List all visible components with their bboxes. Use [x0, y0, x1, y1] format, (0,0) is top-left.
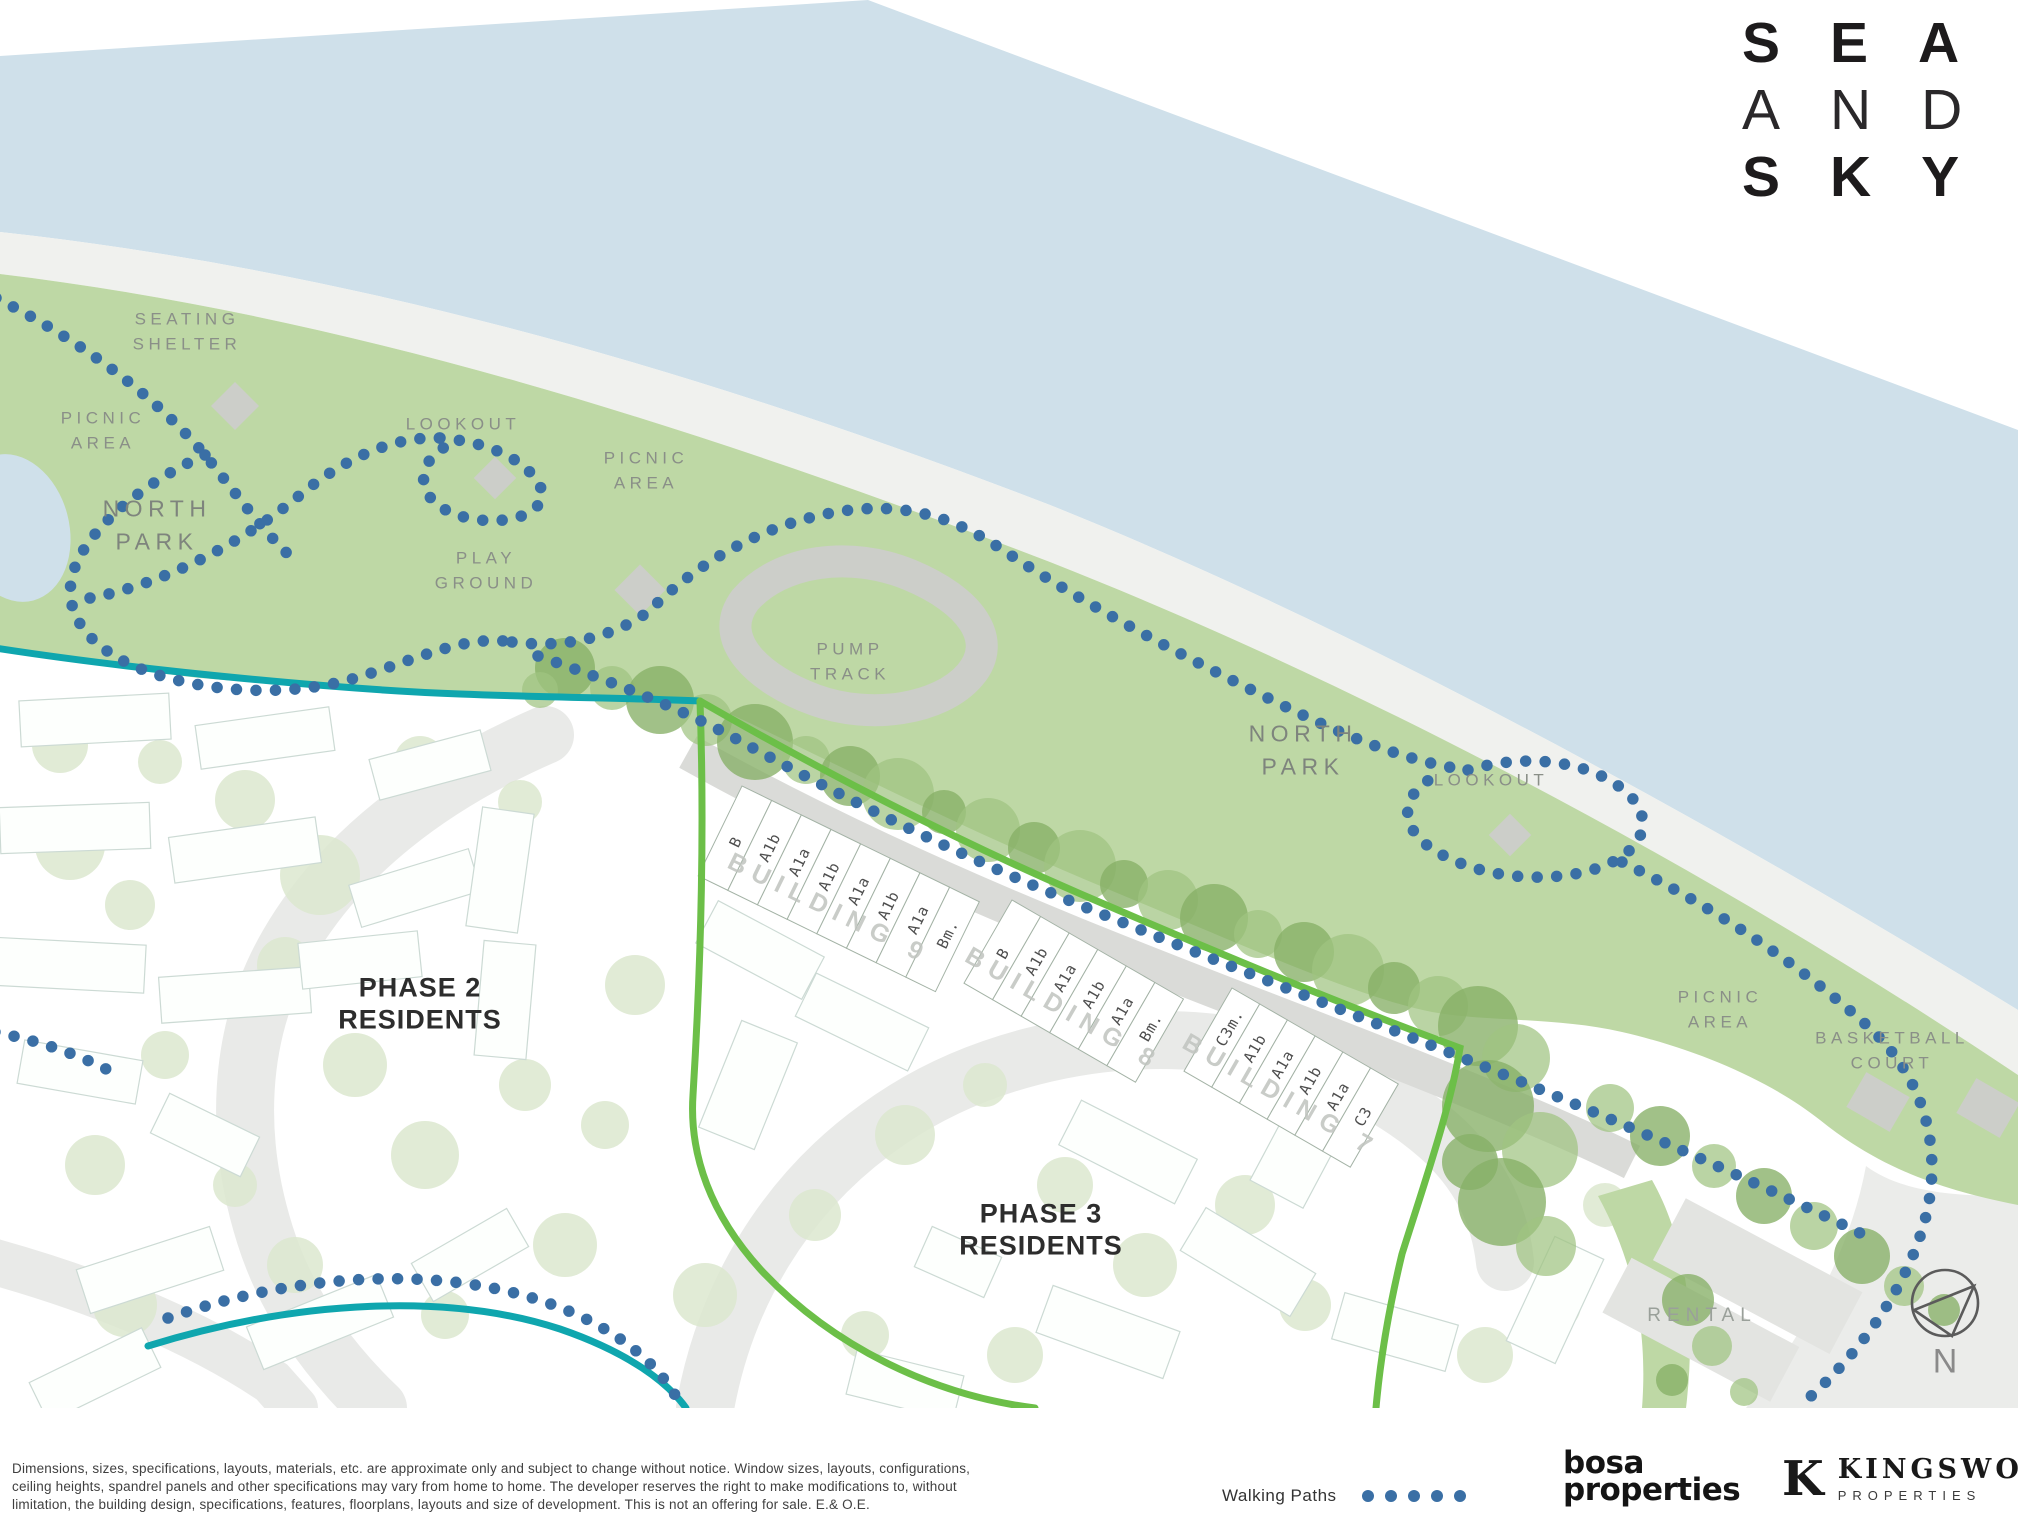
logo-line-sky: SKY: [1742, 144, 2012, 211]
label-picnic-area-mid: PICNIC AREA: [604, 446, 689, 495]
label-picnic-area-east: PICNIC AREA: [1678, 985, 1763, 1034]
label-north-park-east: NORTH PARK: [1249, 718, 1358, 785]
logo-line-sea: SEA: [1742, 10, 2012, 77]
label-pump-track: PUMP TRACK: [810, 637, 890, 686]
kingswood-properties-logo: K KINGSWOOD PROPERTIES: [1782, 1454, 2018, 1503]
kingswood-monogram-icon: K: [1782, 1455, 1824, 1503]
disclaimer-line-3: limitation, the building design, specifi…: [12, 1496, 1152, 1514]
label-picnic-area-west: PICNIC AREA: [61, 406, 146, 455]
label-north-letter: N: [1933, 1337, 1958, 1386]
footer: Dimensions, sizes, specifications, layou…: [0, 1408, 2018, 1519]
logo-line-and: AND: [1742, 77, 2012, 144]
site-plan-map: BA1bA1aA1bA1aA1bA1aBm.BUILDING 9BA1bA1aA…: [0, 0, 2018, 1408]
disclaimer-line-2: ceiling heights, spandrel panels and oth…: [12, 1478, 1152, 1496]
label-rental: RENTAL: [1647, 1302, 1757, 1330]
legend-label: Walking Paths: [1222, 1486, 1337, 1506]
label-play-ground: PLAY GROUND: [435, 546, 538, 595]
sea-and-sky-logo: SEA AND SKY: [1742, 10, 2012, 211]
label-phase2-residents: PHASE 2 RESIDENTS: [338, 972, 502, 1037]
walking-path-dots-icon: [1361, 1489, 1473, 1503]
bosa-properties-logo: bosa properties: [1563, 1450, 1740, 1504]
walking-paths-legend: Walking Paths: [1222, 1486, 1473, 1506]
bosa-line-2: properties: [1563, 1477, 1740, 1504]
disclaimer-text: Dimensions, sizes, specifications, layou…: [12, 1460, 1152, 1514]
label-basketball-court: BASKETBALL COURT: [1815, 1026, 1969, 1075]
kingswood-name: KINGSWOOD: [1838, 1454, 2018, 1485]
label-seating-shelter: SEATING SHELTER: [133, 307, 242, 356]
kingswood-subtitle: PROPERTIES: [1838, 1488, 2018, 1503]
label-lookout-east: LOOKOUT: [1434, 769, 1549, 794]
label-lookout-west: LOOKOUT: [406, 413, 521, 438]
label-phase3-residents: PHASE 3 RESIDENTS: [959, 1198, 1123, 1263]
site-plan-page: { "logo": { "line1": "SEA", "line2": "AN…: [0, 0, 2018, 1519]
disclaimer-line-1: Dimensions, sizes, specifications, layou…: [12, 1460, 1152, 1478]
label-north-park-west: NORTH PARK: [103, 493, 212, 560]
